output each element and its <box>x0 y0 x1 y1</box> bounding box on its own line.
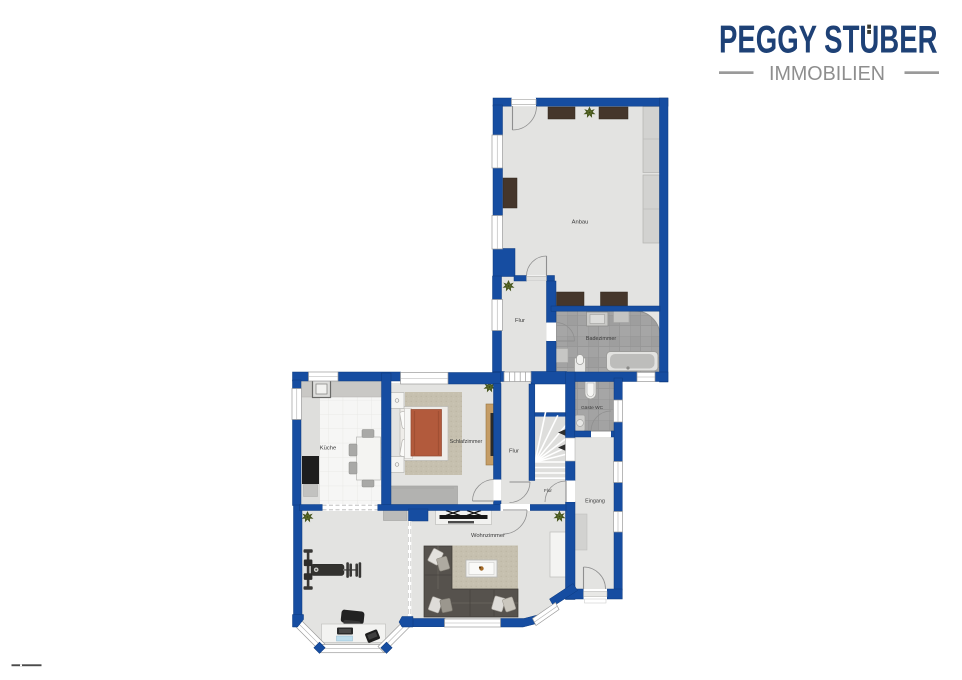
svg-text:Gäste WC: Gäste WC <box>581 405 604 411</box>
svg-text:Badezimmer: Badezimmer <box>586 336 616 342</box>
svg-text:Wohnzimmer: Wohnzimmer <box>471 533 505 539</box>
svg-text:Anbau: Anbau <box>572 220 589 226</box>
svg-text:PEGGY STUBER: PEGGY STUBER <box>719 19 938 62</box>
svg-text:Flur: Flur <box>509 449 519 455</box>
svg-text:IMMOBILIEN: IMMOBILIEN <box>769 62 885 85</box>
svg-text:Flur: Flur <box>515 318 525 324</box>
svg-text:Flur: Flur <box>544 488 552 493</box>
svg-text:Küche: Küche <box>320 446 336 452</box>
svg-text:Schlafzimmer: Schlafzimmer <box>450 439 483 445</box>
svg-text:Eingang: Eingang <box>585 499 605 505</box>
